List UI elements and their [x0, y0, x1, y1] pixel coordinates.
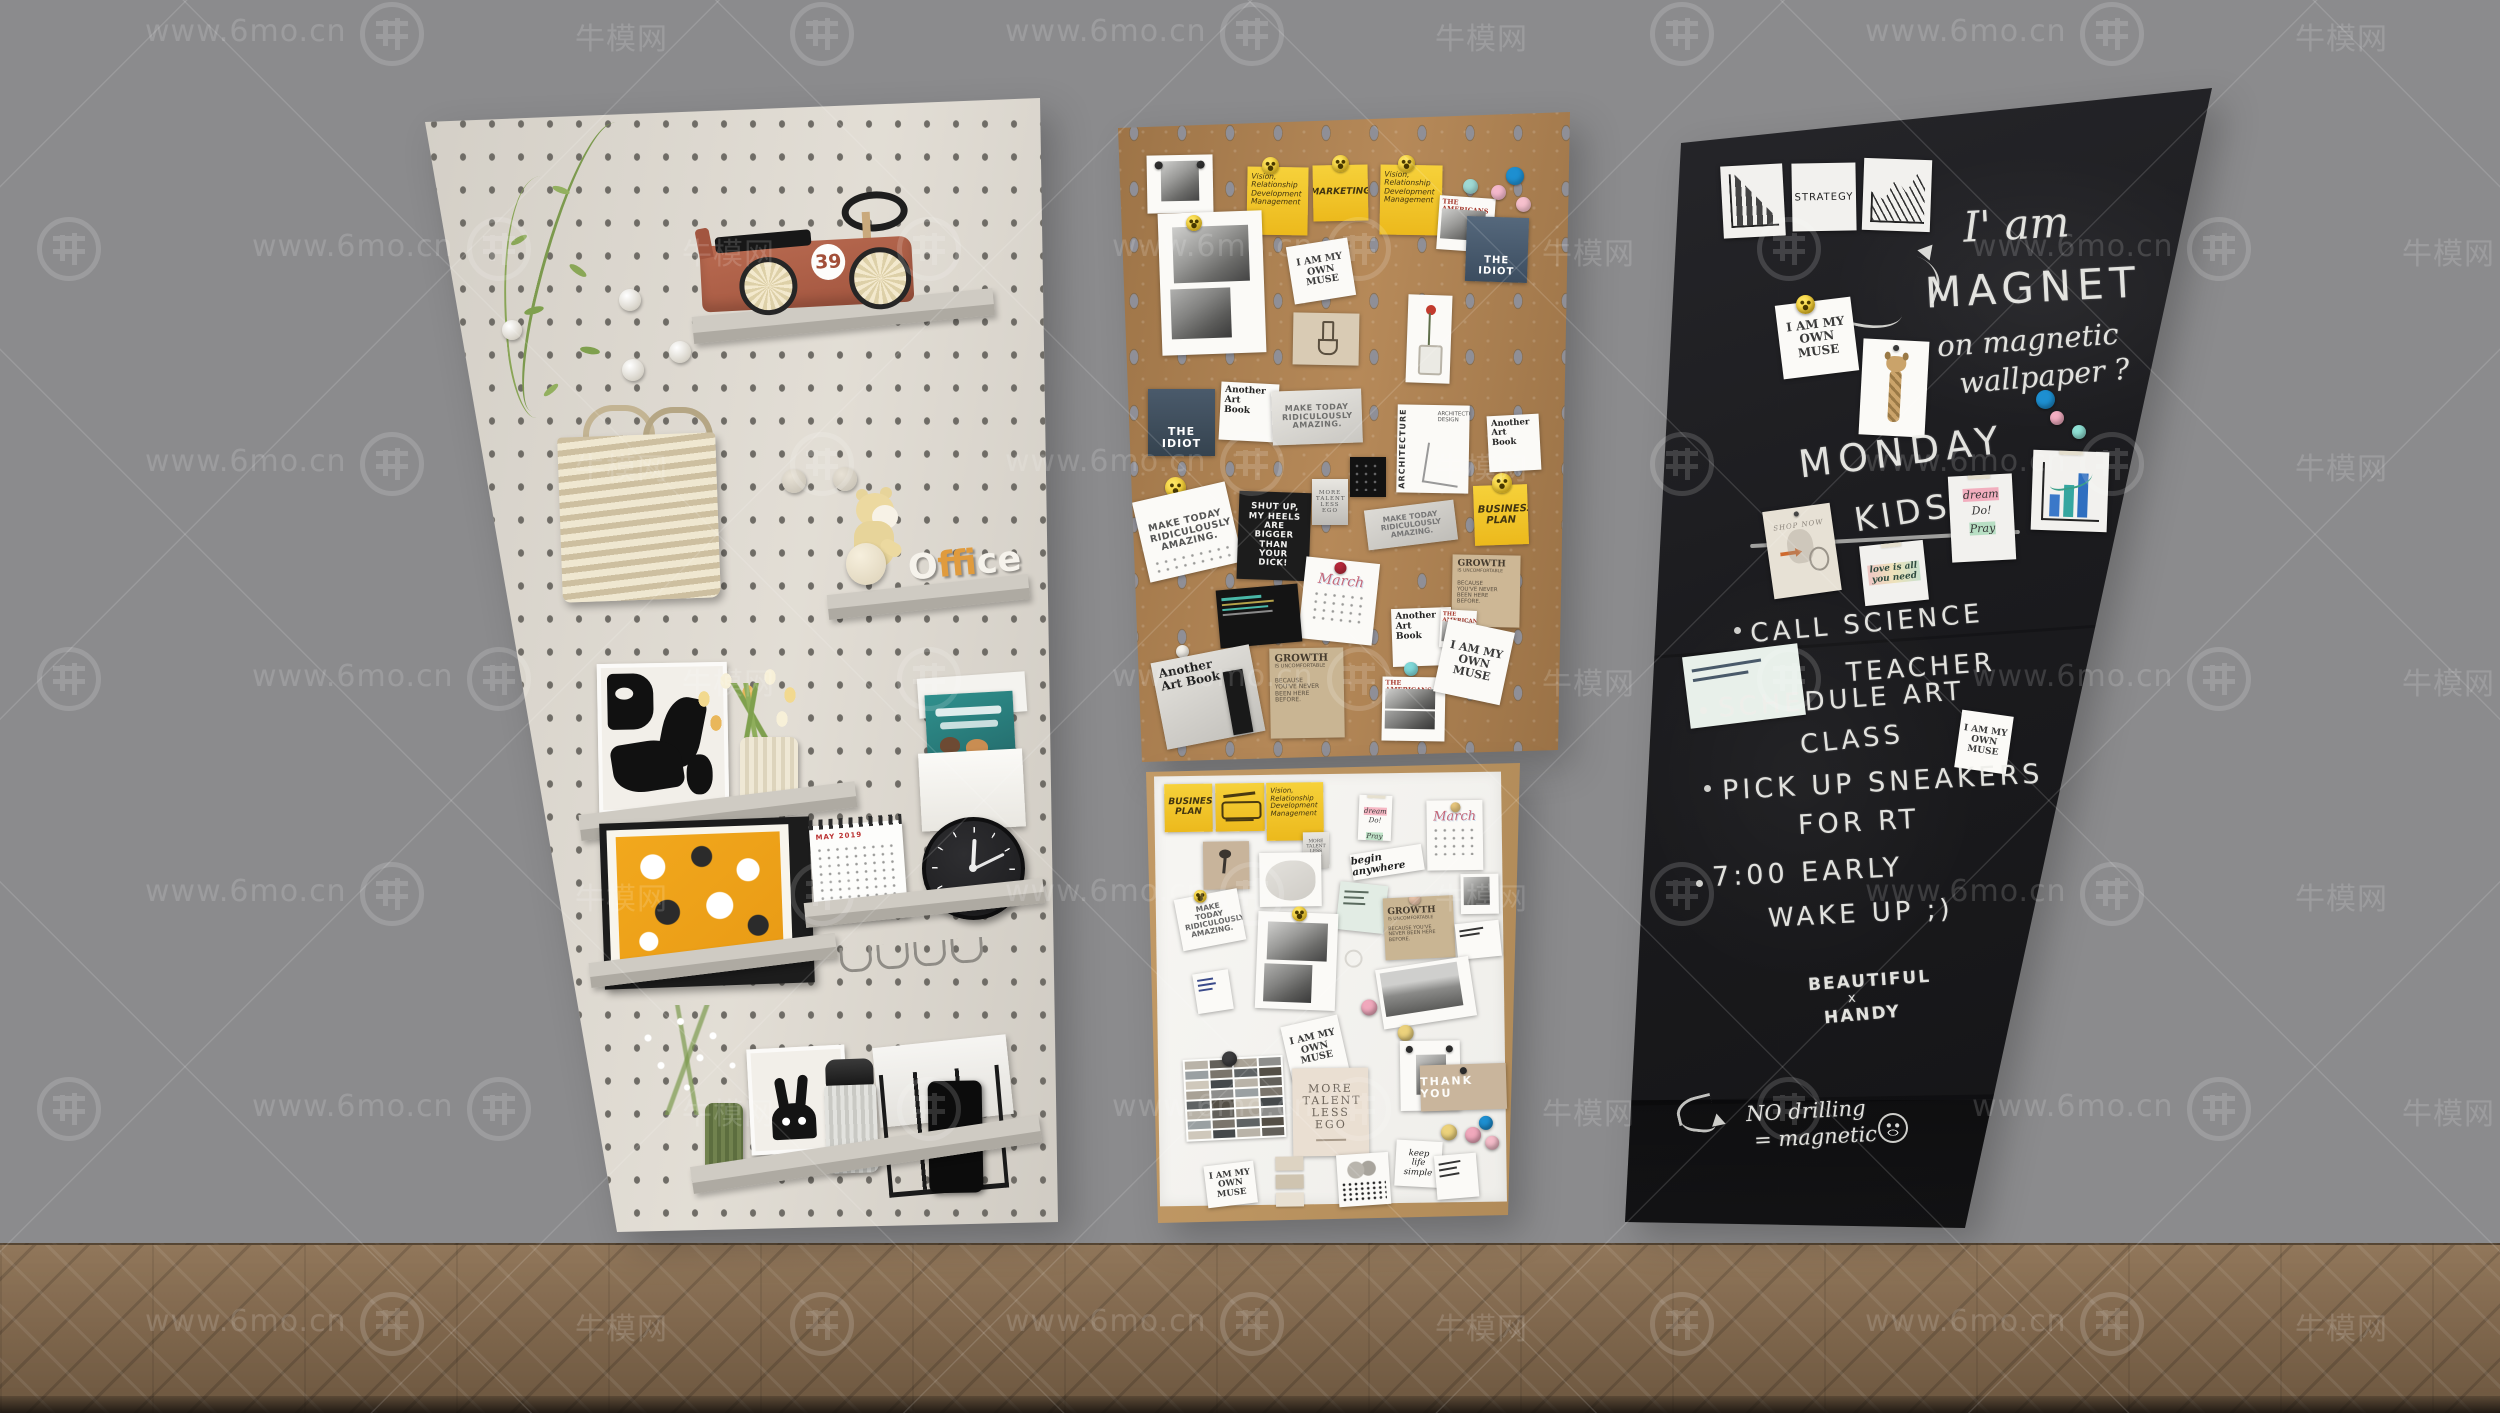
sticky-note: Vision, Relationship Development Managem… — [1379, 164, 1442, 235]
swatch-cell — [1187, 1111, 1210, 1120]
love-text: love is all you need — [1867, 560, 1921, 585]
pin-pink — [1516, 197, 1531, 212]
more-talent-card: MORE TALENT LESS EGO — [1292, 1067, 1369, 1156]
sticky-text: MARKETING — [1313, 188, 1369, 199]
chalk-x: x — [1847, 991, 1856, 1007]
chalk-wake-up: WAKE UP ;) — [1767, 894, 1954, 934]
plant-vine — [482, 117, 632, 447]
swatch-cell — [1213, 1129, 1236, 1138]
watermark-logo-icon — [1220, 2, 1284, 66]
business-plan-text: BUSINESS PLAN — [1478, 503, 1525, 527]
watermark-logo-icon — [360, 862, 424, 926]
swatch-cell — [1185, 1071, 1208, 1080]
chalk-bullet — [1704, 785, 1711, 792]
swatch-cell — [1212, 1119, 1235, 1128]
mint-note — [1335, 881, 1388, 934]
smiley-pin — [1194, 890, 1207, 903]
watermark-brand: 牛模网 — [2402, 659, 2495, 703]
idiot-title: THE IDIOT — [1473, 254, 1520, 278]
magnet-blue — [1479, 1116, 1493, 1130]
growth-card: GROWTH IS UNCOMFORTABLE BECAUSE YOU'VE N… — [1383, 895, 1456, 960]
march-calendar-card: March — [1426, 800, 1483, 871]
tulip-flowers — [676, 623, 826, 743]
smiley-pin — [1492, 473, 1512, 493]
smiley-pin — [1398, 155, 1415, 172]
swatch-cell — [1237, 1118, 1260, 1127]
muse-text: I AM MY OWN MUSE — [1288, 1028, 1342, 1069]
dark-quote-card — [1216, 584, 1303, 649]
watermark-logo-icon — [360, 2, 424, 66]
art-book-text: Another Art Book — [1395, 612, 1436, 643]
dream-text: dream — [1364, 807, 1387, 816]
muse-text: I AM MY OWN MUSE — [1293, 251, 1349, 290]
magnet-ring — [1344, 950, 1362, 968]
chalk-class: CLASS — [1799, 720, 1906, 761]
smiley-pin — [1186, 215, 1202, 231]
chalk-bullet — [1696, 880, 1703, 887]
script-note — [1455, 920, 1502, 960]
watermark-logo-icon — [467, 1077, 531, 1141]
smiley-pin — [1332, 155, 1349, 172]
magnet-yellow — [1441, 1124, 1457, 1140]
make-today-text: MAKE TODAY RIDICULOUSLY AMAZING. — [1282, 403, 1353, 432]
chalk-kids: KIDS — [1852, 486, 1955, 540]
toy-car-steering-wheel — [841, 190, 909, 233]
swatch-cell — [1188, 1121, 1211, 1130]
desk-calendar-title: MAY 2019 — [815, 831, 862, 842]
swatch-cell — [1234, 1058, 1257, 1067]
swatch-cell — [1186, 1091, 1209, 1100]
muse-text: I AM MY OWN MUSE — [1960, 724, 2008, 760]
line-chart-card — [1862, 158, 1932, 232]
growth-body: BECAUSE YOU'VE NEVER BEEN HERE BEFORE. — [1275, 677, 1325, 704]
shop-now-card: SHOP NOW — [1762, 503, 1842, 600]
floor-shadow-strip — [0, 1396, 2500, 1413]
sticky-text: Vision, Relationship Development Managem… — [1270, 786, 1317, 817]
growth-body: BECAUSE YOU'VE NEVER BEEN HERE BEFORE. — [1388, 925, 1437, 944]
watermark-url: www.6mo.cn — [145, 874, 347, 909]
love-card: love is all you need — [1859, 540, 1929, 606]
watermark-brand: 牛模网 — [1542, 1089, 1635, 1133]
peg-knob — [669, 341, 691, 363]
watermark-logo-icon — [2080, 862, 2144, 926]
shut-up-text: SHUT UP, MY HEELS ARE BIGGER THAN YOUR D… — [1244, 502, 1304, 569]
wire-hook — [876, 943, 910, 970]
swatch-cell — [1211, 1099, 1234, 1108]
thank-you-card: THANK YOU — [1420, 1063, 1507, 1112]
thank-you-text: THANK YOU — [1420, 1074, 1507, 1101]
watermark-url: www.6mo.cn — [145, 14, 347, 49]
watermark-url: www.6mo.cn — [252, 1089, 454, 1124]
make-today-card: MAKE TODAY RIDICULOUSLY AMAZING. — [1271, 388, 1363, 445]
wire-hook — [913, 940, 947, 967]
scene: 39 Office — [0, 0, 2500, 1413]
sticky-text: Vision, Relationship Development Managem… — [1384, 170, 1435, 205]
chalk-smiley-face — [1878, 1113, 1908, 1143]
watermark-brand: 牛模网 — [1435, 14, 1528, 58]
pin-cyan — [1404, 662, 1418, 676]
more-talent-text: MORE TALENT LESS EGO — [1302, 1082, 1359, 1131]
swatch-cell — [1234, 1068, 1257, 1077]
muse-note: I AM MY OWN MUSE — [1286, 238, 1356, 305]
swatch-cell — [1210, 1079, 1233, 1088]
pray-text: Pray — [1970, 521, 1996, 535]
watermark-url: www.6mo.cn — [252, 659, 454, 694]
watermark-logo-icon — [37, 647, 101, 711]
swatch-cell — [1212, 1109, 1235, 1118]
peg-knob — [619, 289, 641, 311]
idiot-card: THE IDIOT — [1148, 389, 1215, 456]
pin-blue — [1506, 167, 1524, 185]
pin-pink — [1491, 185, 1506, 200]
smiley-magnet — [1796, 295, 1815, 314]
sticky-doodle-note — [1215, 783, 1265, 832]
swatch-cell — [1211, 1089, 1234, 1098]
toy-car: 39 — [695, 187, 922, 328]
shut-up-card: SHUT UP, MY HEELS ARE BIGGER THAN YOUR D… — [1236, 491, 1311, 581]
swatch-cell — [1261, 1107, 1284, 1116]
strategy-card: STRATEGY — [1791, 162, 1856, 231]
toy-car-number: 39 — [814, 250, 842, 273]
blue-chart-card — [2031, 450, 2110, 533]
chalk-bullet — [1700, 707, 1707, 714]
magnet-pink — [2050, 411, 2064, 425]
baby-breath-flowers — [622, 1005, 752, 1115]
watermark-url: www.6mo.cn — [1865, 14, 2067, 49]
sticky-note: MARKETING — [1313, 165, 1369, 222]
watermark-logo-icon — [1650, 2, 1714, 66]
dream-do-pray-card: dream Do! Pray — [1948, 473, 2016, 562]
swatch-cell — [1259, 1077, 1282, 1086]
chalk-bullet — [1734, 627, 1741, 634]
teddy-ball — [846, 543, 886, 585]
sea-photo-small — [1460, 874, 1499, 915]
make-today-text: MAKE TODAY RIDICULOUSLY AMAZING. — [1373, 508, 1449, 542]
make-today-card: MAKE TODAY RIDICULOUSLY AMAZING. — [1132, 481, 1243, 582]
watermark-url: www.6mo.cn — [1005, 14, 1207, 49]
muse-text: I AM MY OWN MUSE — [1443, 638, 1505, 685]
wire-organizer — [877, 1045, 1005, 1195]
flower-photo-card — [1405, 294, 1452, 383]
mini-calendar-card — [1350, 457, 1386, 497]
watermark-url: www.6mo.cn — [252, 229, 454, 264]
art-book-text: Another Art Book — [1224, 386, 1265, 418]
flamingo-card — [1203, 841, 1250, 890]
swatch-cell — [1235, 1088, 1258, 1097]
magnet-pink — [1485, 1136, 1499, 1150]
sticky-text: Vision, Relationship Development Managem… — [1251, 172, 1302, 207]
whiteboard-surface: BUSINESS PLAN Vision, Relationship Devel… — [1154, 772, 1507, 1207]
swatch-cell — [1260, 1097, 1283, 1106]
swatch-cell — [1236, 1098, 1259, 1107]
magnet-blue — [2036, 390, 2055, 409]
watermark-brand: 牛模网 — [2295, 444, 2388, 488]
peg-knob — [502, 320, 522, 340]
script-note — [1434, 1153, 1480, 1200]
magazine-rack — [918, 675, 1033, 833]
swatch-cell — [1260, 1087, 1283, 1096]
growth-body: BECAUSE YOU'VE NEVER BEEN HERE BEFORE. — [1457, 580, 1501, 605]
chalk-700-early: 7:00 EARLY — [1711, 852, 1904, 893]
swatch-cell — [1259, 1067, 1282, 1076]
swatch-cell — [1187, 1101, 1210, 1110]
sea-photo-card — [1375, 956, 1477, 1030]
begin-anywhere-text: begin anywhere — [1350, 846, 1425, 879]
art-book-note: Another Art Book — [1487, 414, 1542, 473]
growth-sub: IS UNCOMFORTABLE — [1457, 569, 1515, 575]
pray-text: Pray — [1366, 832, 1382, 841]
dream-do-pray-card: dream Do! Pray — [1358, 795, 1393, 841]
watermark-logo-icon — [360, 432, 424, 496]
sticky-text: BUSINESS PLAN — [1168, 798, 1208, 818]
make-today-card: MAKE TODAY RIDICULOUSLY AMAZING. — [1174, 888, 1247, 951]
swatch-cell — [1261, 1117, 1284, 1126]
pegboard: 39 Office — [420, 75, 1070, 1240]
strategy-text: STRATEGY — [1794, 191, 1853, 203]
giraffe-card — [1859, 338, 1930, 437]
business-plan-sticky: BUSINESS PLAN — [1473, 484, 1529, 546]
wire-hook — [839, 946, 873, 973]
swatch-cell — [1210, 1069, 1233, 1078]
make-today-text: MAKE TODAY RIDICULOUSLY AMAZING. — [1181, 899, 1238, 941]
watermark-logo-icon — [2187, 647, 2251, 711]
muse-note: I AM MY OWN MUSE — [1203, 1161, 1258, 1209]
sticky-note: BUSINESS PLAN — [1164, 784, 1213, 833]
more-talent-text: MORE TALENT LESS EGO — [1316, 490, 1344, 514]
chalk-for-rt: FOR RT — [1797, 804, 1920, 841]
chalk-magnet: MAGNET — [1924, 257, 2143, 317]
muse-text: I AM MY OWN MUSE — [1208, 1168, 1253, 1201]
magnet-cyan — [2072, 425, 2086, 439]
photo-collage-card — [1158, 210, 1267, 356]
do-text: Do! — [1358, 816, 1391, 825]
growth-card: GROWTH IS UNCOMFORTABLE BECAUSE YOU'VE N… — [1269, 647, 1345, 738]
growth-sub: IS UNCOMFORTABLE — [1274, 663, 1338, 670]
swatch-cell — [1236, 1108, 1259, 1117]
tote-bag — [557, 432, 721, 602]
watermark-logo-icon — [2080, 2, 2144, 66]
watermark-logo-icon — [2187, 1077, 2251, 1141]
smiley-pin — [1292, 906, 1307, 921]
chalk-arrow-doodle — [1672, 1095, 1732, 1135]
magnet-yellow — [1398, 1025, 1414, 1041]
more-talent-small: MORE TALENT LESS EGO — [1312, 479, 1348, 525]
pin-cyan — [1463, 179, 1478, 194]
watermark-brand: 牛模网 — [575, 14, 668, 58]
muse-text: I AM MY OWN MUSE — [1785, 315, 1849, 362]
wood-floor — [0, 1243, 2500, 1413]
wire-hook — [950, 937, 984, 964]
chalk-i-am: I' am — [1962, 197, 2071, 251]
keep-life-simple-text: keep life simple — [1400, 1149, 1438, 1179]
do-text: Do! — [1949, 502, 2014, 518]
watermark-logo-icon — [790, 2, 854, 66]
muse-note: I AM MY OWN MUSE — [1433, 619, 1515, 706]
magnet-pink — [1361, 999, 1377, 1015]
watermark-logo-icon — [37, 1077, 101, 1141]
photo-card — [1146, 154, 1213, 213]
begin-anywhere-card: begin anywhere — [1350, 844, 1425, 881]
swatch-cell — [1188, 1131, 1211, 1140]
chalk-pickup: PICK UP SNEAKERS — [1721, 759, 2044, 807]
idiot-title: THE IDIOT — [1157, 426, 1207, 450]
office-sign-letter: O — [906, 546, 939, 588]
chalkboard: STRATEGY I' am MAGNET on magnetic wallpa… — [1620, 85, 2220, 1235]
magnet-pink — [1465, 1127, 1481, 1143]
art-book-text: Another Art Book — [1158, 656, 1224, 694]
watermark-brand: 牛模网 — [2295, 874, 2388, 918]
photo-collage-card — [1255, 911, 1339, 1011]
swatch-strips — [1275, 1156, 1306, 1212]
dream-text: dream — [1963, 487, 1999, 502]
peg-knob — [782, 469, 806, 493]
dotted-photo-card — [1336, 1152, 1391, 1207]
chalk-handy: HANDY — [1823, 1002, 1901, 1029]
color-swatch-chart — [1183, 1055, 1287, 1142]
vase-sketch-card — [1293, 312, 1360, 365]
bar-chart-card — [1720, 163, 1786, 238]
watermark-url: www.6mo.cn — [1972, 1089, 2174, 1124]
office-sign-letters: fice — [975, 539, 1023, 583]
make-today-card: MAKE TODAY RIDICULOUSLY AMAZING. — [1364, 500, 1458, 551]
faded-photo-card — [1259, 852, 1322, 907]
art-book-note-large: Another Art Book — [1151, 644, 1266, 749]
magnet-dark — [1222, 1051, 1237, 1066]
corkboard: Vision, Relationship Development Managem… — [1110, 105, 1585, 770]
watermark-brand: 牛模网 — [2402, 229, 2495, 273]
march-calendar-card: March — [1298, 556, 1380, 645]
smiley-pin — [1262, 157, 1279, 174]
teddy-figurine — [850, 487, 912, 592]
art-book-text: Another Art Book — [1491, 418, 1528, 448]
whiteboard: BUSINESS PLAN Vision, Relationship Devel… — [1140, 758, 1530, 1228]
watermark-url: www.6mo.cn — [145, 444, 347, 479]
idiot-card: THE IDIOT — [1465, 216, 1529, 283]
swatch-cell — [1186, 1081, 1209, 1090]
peg-knob — [622, 359, 644, 381]
chalk-beautiful: BEAUTIFUL — [1807, 967, 1931, 996]
watermark-logo-icon — [2187, 217, 2251, 281]
watermark-brand: 牛模网 — [2295, 14, 2388, 58]
swatch-cell — [1258, 1057, 1281, 1066]
swatch-cell — [1235, 1078, 1258, 1087]
office-sign-letter-accent: f — [936, 543, 978, 586]
swatch-cell — [1237, 1128, 1260, 1137]
growth-sub: IS UNCOMFORTABLE — [1388, 915, 1450, 923]
muse-note: I AM MY OWN MUSE — [1775, 297, 1859, 380]
tiny-script-note — [1192, 969, 1234, 1014]
architecture-subtitle: ARCHITECTURE DESIGN — [1437, 411, 1465, 424]
swatch-cell — [1185, 1061, 1208, 1070]
watermark-logo-icon — [37, 217, 101, 281]
architecture-title: ARCHITECTURE — [1398, 408, 1408, 488]
swatch-cell — [1262, 1127, 1285, 1136]
watermark-brand: 牛模网 — [2402, 1089, 2495, 1133]
architecture-card: ARCHITECTURE ARCHITECTURE DESIGN — [1396, 404, 1470, 493]
